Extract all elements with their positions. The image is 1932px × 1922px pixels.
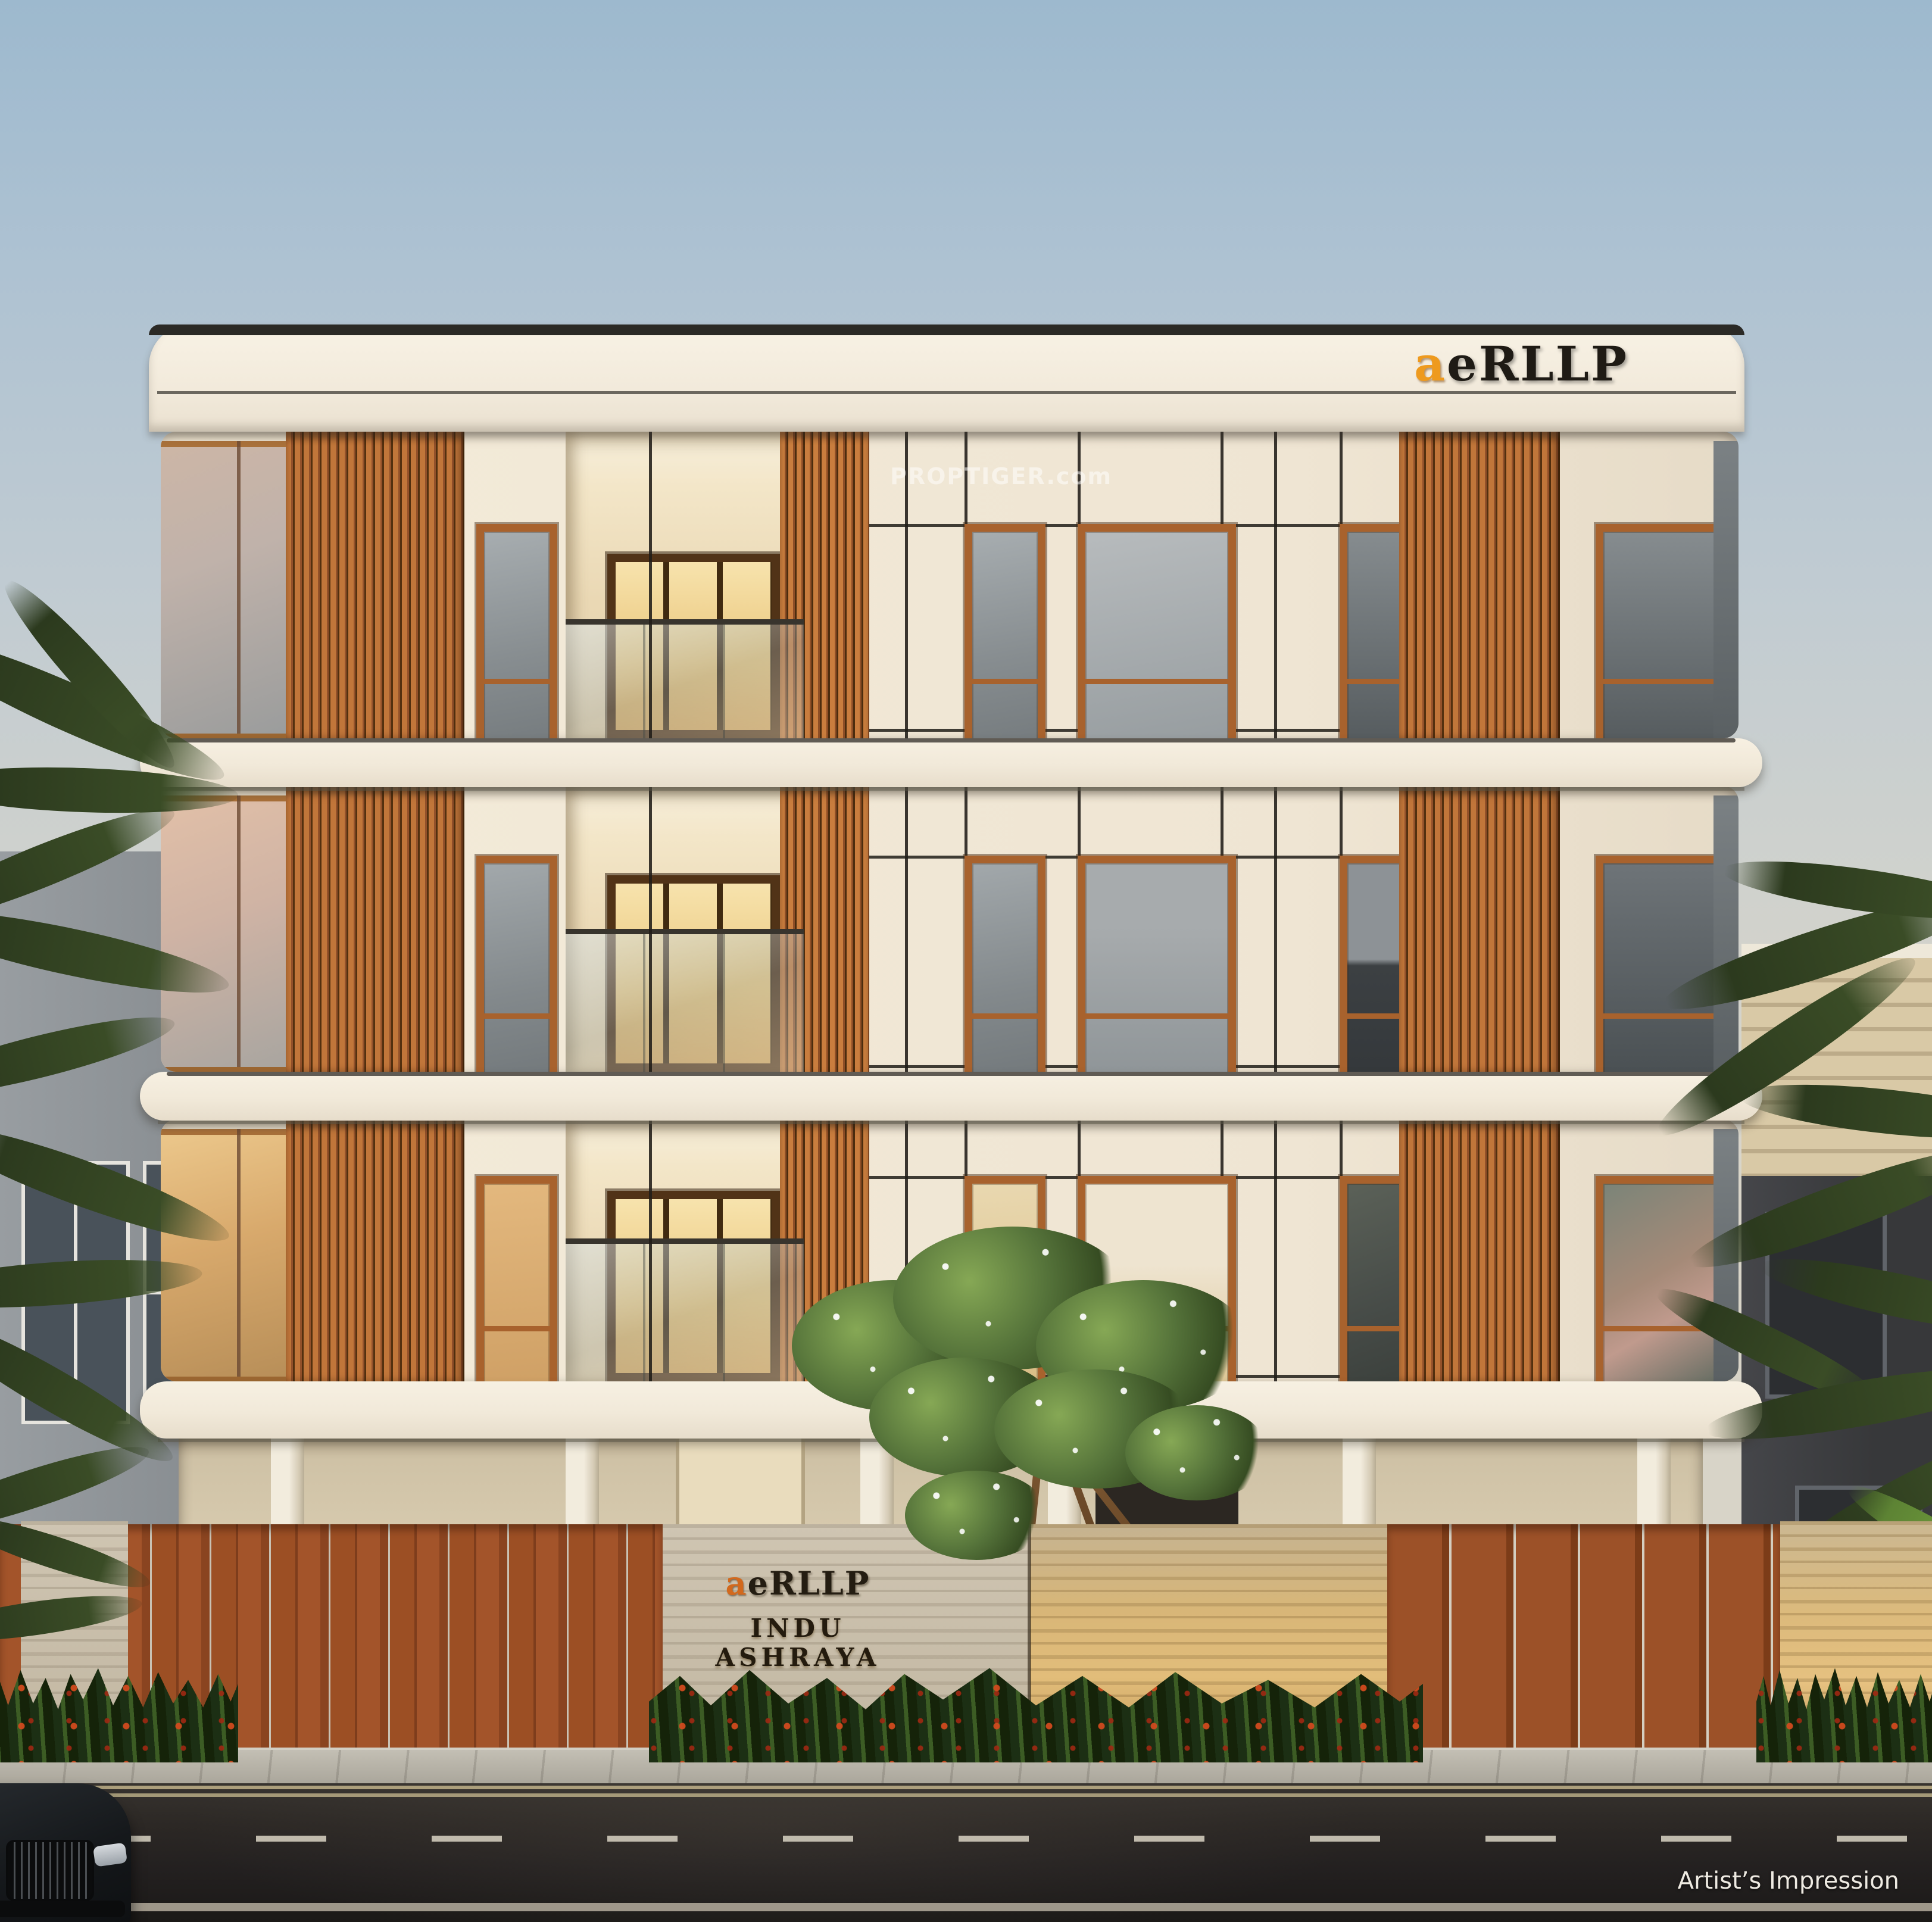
floor-2 — [161, 786, 1739, 1072]
brand-logo-prefix: a — [1414, 336, 1447, 392]
wood-framed-window — [1596, 524, 1730, 738]
tree-foliage-cluster — [1125, 1405, 1268, 1500]
wood-framed-window — [1596, 1176, 1730, 1381]
car-grille — [6, 1840, 94, 1901]
floor-slab-band — [140, 1072, 1762, 1121]
tree-foliage-cluster — [905, 1471, 1048, 1560]
window-mullion — [237, 795, 241, 1072]
sign-logo: aeRLLP — [667, 1567, 929, 1599]
corner-glass-window — [1713, 441, 1739, 738]
brand-logo: aeRLLP — [1414, 340, 1628, 388]
wood-slat-screen-right — [1399, 1119, 1560, 1381]
gate-sign: aeRLLP INDU ASHRAYA — [667, 1567, 929, 1672]
facade-mullion — [649, 1119, 652, 1381]
slab-shadow-line — [158, 1121, 1744, 1124]
floor-slab-band — [140, 738, 1762, 787]
corner-glass-window — [161, 795, 286, 1072]
sign-logo-prefix: a — [726, 1564, 748, 1602]
wood-framed-window — [965, 524, 1045, 738]
wood-slat-screen-right — [1399, 432, 1560, 738]
car-bumper — [0, 1901, 125, 1917]
facade-mullion — [1274, 786, 1277, 1072]
sign-logo-suffix: eRLLP — [748, 1564, 870, 1602]
balcony-recess — [566, 432, 869, 738]
wood-framed-window — [476, 1176, 557, 1381]
wood-plank-fence-right — [1387, 1524, 1780, 1751]
wood-framed-window — [1078, 856, 1236, 1072]
parapet-dark-trim — [149, 325, 1744, 335]
facade-mullion — [649, 786, 652, 1072]
road-lane-dashes — [0, 1836, 1932, 1842]
watermark: PROPTIGER.com — [890, 463, 1112, 489]
parapet: aeRLLP — [149, 325, 1744, 432]
wood-slat-screen-left — [286, 432, 464, 738]
road-edge-line — [0, 1786, 1932, 1789]
wood-slat-screen-left — [286, 1119, 464, 1381]
facade-mullion — [905, 786, 908, 1072]
balcony-glass-railing — [566, 1238, 804, 1381]
wood-framed-window — [1078, 524, 1236, 738]
corner-glass-window — [161, 1129, 286, 1381]
corner-glass-window — [161, 441, 286, 738]
balcony-glass-railing — [566, 929, 804, 1072]
wood-framed-window — [476, 524, 557, 738]
window-mullion — [237, 1129, 241, 1381]
wood-framed-window — [965, 856, 1045, 1072]
corner-glass-window — [1713, 795, 1739, 1072]
facade-mullion — [1274, 1119, 1277, 1381]
wood-framed-window — [1596, 856, 1730, 1072]
artists-impression-caption: Artist’s Impression — [1678, 1867, 1899, 1895]
wood-framed-window — [476, 856, 557, 1072]
railing-top-line — [167, 738, 1736, 742]
wood-slat-screen-right — [1399, 786, 1560, 1072]
slab-shadow-line — [158, 787, 1744, 791]
asphalt-road — [0, 1783, 1932, 1922]
sign-project-name: INDU ASHRAYA — [667, 1614, 929, 1672]
balcony-recess — [566, 786, 869, 1072]
window-mullion — [237, 441, 241, 738]
balcony-glass-railing — [566, 619, 804, 738]
road-bottom-strip — [0, 1903, 1932, 1911]
road-edge-line — [0, 1793, 1932, 1797]
wood-slat-screen-left — [286, 786, 464, 1072]
railing-top-line — [167, 1072, 1736, 1076]
brand-logo-suffix: eRLLP — [1447, 336, 1628, 392]
architectural-render-scene: aeRLLP aeRLLP INDU ASHRAYA — [0, 0, 1932, 1922]
facade-mullion — [1274, 432, 1277, 738]
facade-mullion — [649, 432, 652, 738]
